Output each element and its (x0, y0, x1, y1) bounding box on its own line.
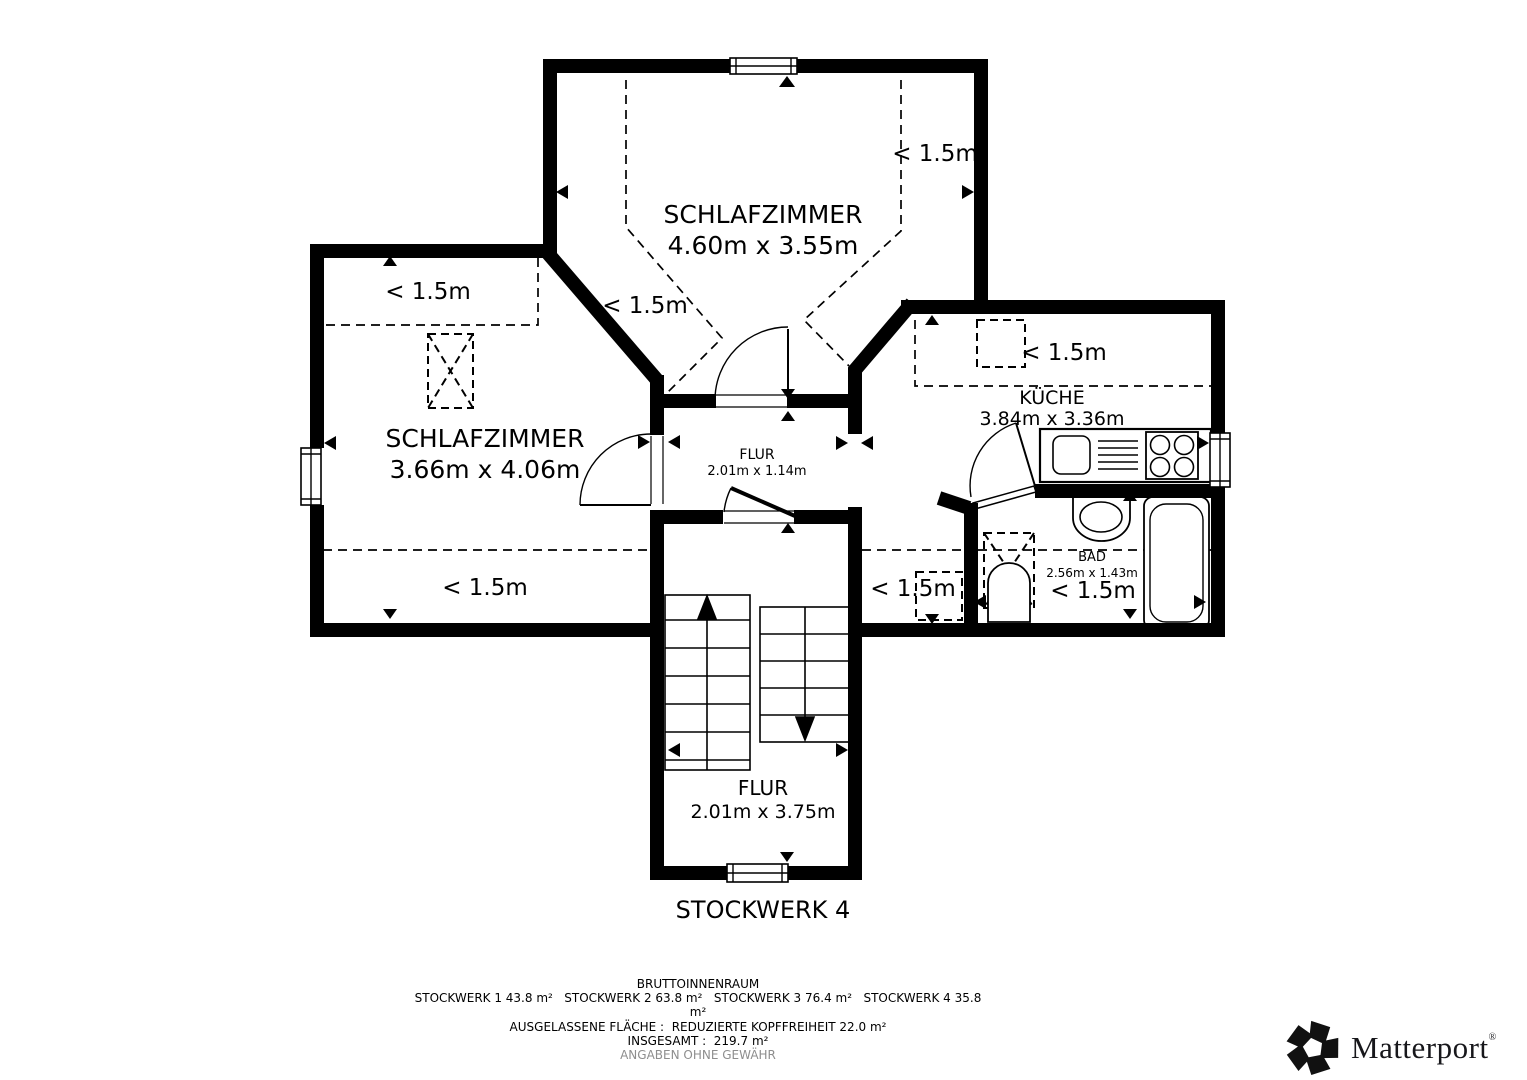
footer-excluded-line: AUSGELASSENE FLÄCHE : REDUZIERTE KOPFFRE… (0, 1020, 1396, 1034)
floorplan-page: SCHLAFZIMMER 4.60m x 3.55m SCHLAFZIMMER … (0, 0, 1527, 1080)
footer-disclaimer: ANGABEN OHNE GEWÄHR (0, 1048, 1396, 1062)
door-swing-arc (715, 327, 788, 400)
door-leaf (973, 486, 1036, 509)
measure-arrow-icon (962, 185, 974, 199)
measure-arrow-icon (861, 436, 873, 450)
matterport-logo: Matterport® (1284, 1019, 1496, 1077)
door-leaf (1016, 423, 1035, 486)
burner-icon (1151, 436, 1170, 455)
measure-arrow-icon (668, 435, 680, 449)
kitchen-sink-icon (1053, 436, 1090, 474)
headroom-label: < 1.5m (1021, 340, 1107, 366)
headroom-label: < 1.5m (602, 293, 688, 319)
door-leaf (731, 488, 795, 516)
measure-arrow-icon (779, 76, 795, 87)
measure-arrow-icon (836, 743, 848, 757)
room-name-kitchen: KÜCHE (1019, 386, 1084, 409)
measure-arrow-icon (324, 436, 336, 450)
wall-segment (939, 498, 969, 508)
measure-arrow-icon (556, 185, 568, 199)
headroom-label: < 1.5m (385, 279, 471, 305)
measure-arrow-icon (781, 411, 795, 421)
window-symbol (730, 58, 797, 74)
wall-segment (317, 251, 657, 448)
room-dims-bedroom-top: 4.60m x 3.55m (668, 231, 859, 260)
headroom-label: < 1.5m (442, 575, 528, 601)
measure-arrow-icon (836, 436, 848, 450)
floorplan-svg: SCHLAFZIMMER 4.60m x 3.55m SCHLAFZIMMER … (0, 0, 1527, 1080)
footer-floors-line: STOCKWERK 1 43.8 m² STOCKWERK 2 63.8 m² … (0, 991, 1396, 1005)
doors (580, 327, 1036, 516)
room-dims-kitchen: 3.84m x 3.36m (980, 408, 1125, 430)
staircase (665, 595, 850, 770)
door-swing-arc (724, 488, 731, 512)
room-name-hall-lower: FLUR (738, 776, 788, 800)
footer-floors-wrap: m² (0, 1005, 1396, 1019)
area-summary: BRUTTOINNENRAUM STOCKWERK 1 43.8 m² STOC… (0, 977, 1396, 1062)
headroom-label: < 1.5m (870, 576, 956, 602)
measure-arrow-icon (638, 435, 650, 449)
footer-heading: BRUTTOINNENRAUM (0, 977, 1396, 991)
measure-arrow-icon (383, 609, 397, 619)
room-name-bedroom-left: SCHLAFZIMMER (386, 424, 585, 453)
window-symbol (301, 448, 321, 505)
skylight-cross (428, 334, 473, 408)
room-dims-hall-lower: 2.01m x 3.75m (691, 801, 836, 823)
headroom-label-bath: < 1.5m (1050, 578, 1136, 604)
room-name-bedroom-top: SCHLAFZIMMER (664, 200, 863, 229)
room-name-hall-upper: FLUR (739, 447, 774, 463)
matterport-logo-icon (1284, 1019, 1342, 1077)
window-symbol (1210, 433, 1230, 487)
washbasin-icon (988, 563, 1030, 622)
toilet-bowl-icon (1080, 502, 1122, 532)
registered-mark: ® (1489, 1032, 1497, 1043)
footer-total-line: INSGESAMT : 219.7 m² (0, 1034, 1396, 1048)
room-dims-hall-upper: 2.01m x 1.14m (707, 464, 806, 479)
room-dims-bedroom-left: 3.66m x 4.06m (390, 455, 581, 484)
skylight-dashed-box (977, 320, 1025, 367)
burner-icon (1175, 458, 1194, 477)
room-name-bath: BAD (1078, 550, 1106, 565)
wall-segment (855, 303, 912, 434)
measure-arrow-icon (925, 315, 939, 325)
burner-icon (1151, 458, 1170, 477)
headroom-label: < 1.5m (892, 141, 978, 167)
measure-arrow-icon (780, 852, 794, 862)
measure-arrow-icon (781, 523, 795, 533)
door-swing-arc (970, 423, 1016, 497)
wall-segment (550, 66, 981, 314)
matterport-logo-text: Matterport® (1351, 1030, 1496, 1066)
burner-icon (1175, 436, 1194, 455)
measure-arrow-icon (1123, 609, 1137, 619)
window-symbol (727, 864, 788, 882)
wall-segment (317, 505, 664, 630)
floor-title: STOCKWERK 4 (676, 896, 851, 924)
